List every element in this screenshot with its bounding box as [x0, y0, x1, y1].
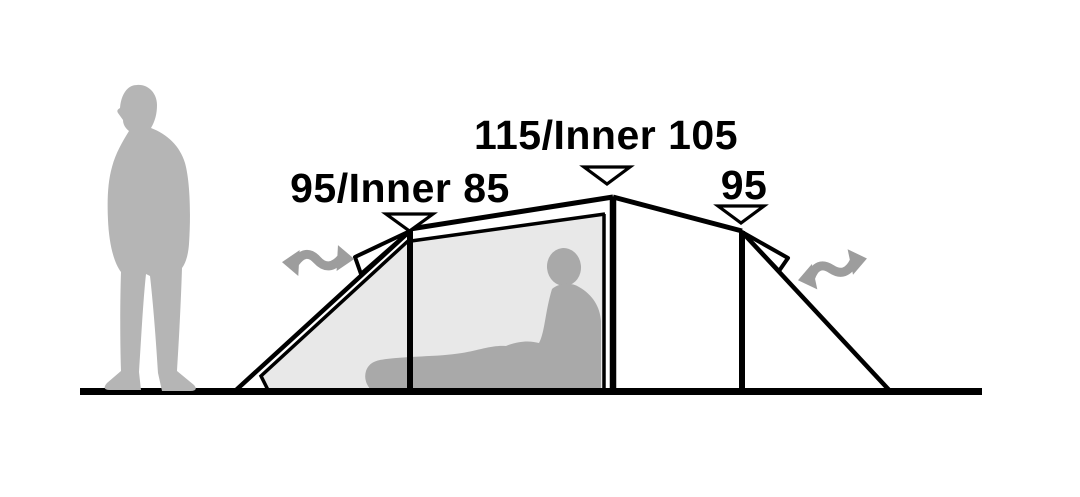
tent-dimension-diagram: 95/Inner 85 115/Inner 105 95: [0, 0, 1080, 497]
right-height-label: 95: [721, 162, 768, 208]
left-height-label: 95/Inner 85: [290, 165, 510, 211]
airflow-arrow-icon: [281, 242, 355, 279]
airflow-arrow-icon: [794, 246, 871, 293]
down-triangle-icon: [718, 206, 764, 223]
center-height-label: 115/Inner 105: [474, 112, 738, 158]
standing-person-silhouette: [105, 85, 196, 391]
diagram-canvas: 95/Inner 85 115/Inner 105 95: [0, 0, 1080, 497]
down-triangle-icon: [584, 167, 630, 184]
right-fly-line: [742, 232, 890, 391]
